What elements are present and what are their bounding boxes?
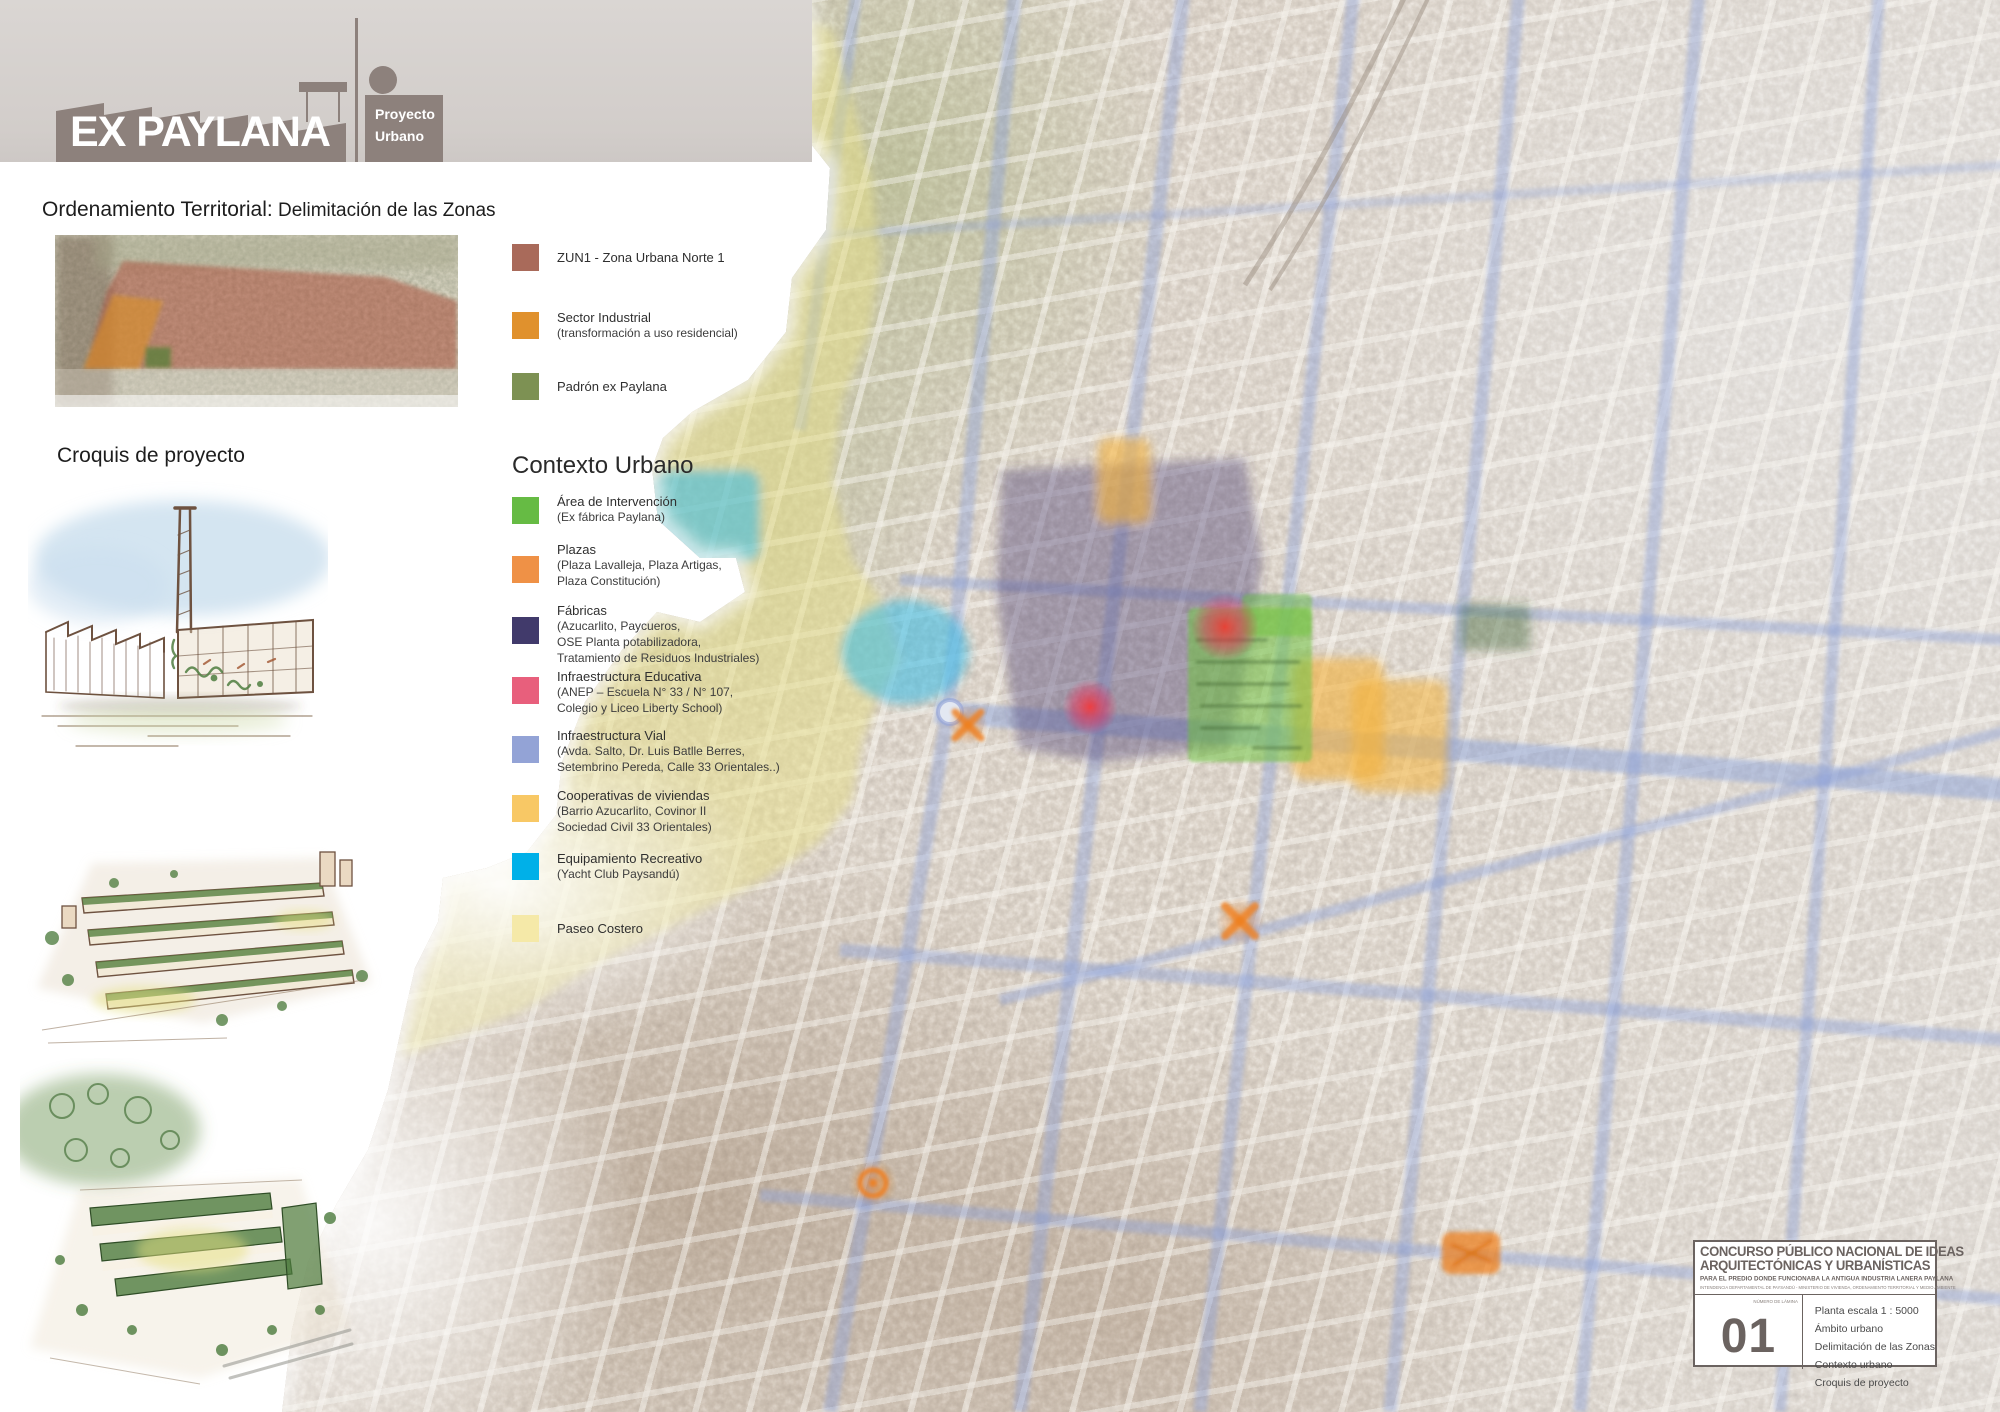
legend-subline: Plaza Constitución): [557, 574, 857, 590]
title-block-header: CONCURSO PÚBLICO NACIONAL DE IDEAS ARQUI…: [1695, 1242, 1935, 1295]
legend-subline: Sociedad Civil 33 Orientales): [557, 820, 857, 836]
legend-subline: (Plaza Lavalleja, Plaza Artigas,: [557, 558, 857, 574]
marker-plaza-rect: [1442, 1232, 1500, 1274]
sheet-contents-item: Contexto urbano: [1815, 1356, 1935, 1374]
header-band: EX PAYLANA Proyecto Urbano: [0, 0, 812, 162]
sheet-number: 01: [1695, 1309, 1802, 1364]
sports-field: [1460, 604, 1530, 650]
marker-educativa-1: [1191, 593, 1259, 661]
legend-swatch: [512, 617, 539, 644]
sheet-contents-list: Planta escala 1 : 5000 Ámbito urbano Del…: [1803, 1295, 1935, 1369]
competition-title-line2: ARQUITECTÓNICAS Y URBANÍSTICAS: [1700, 1259, 1924, 1273]
logo-title: EX PAYLANA: [70, 111, 330, 154]
marker-plaza-x1: [948, 705, 988, 745]
legend-swatch: [512, 497, 539, 524]
legend-label: Infraestructura Vial: [557, 728, 857, 744]
legend-subline: (Ex fábrica Paylana): [557, 510, 857, 526]
competition-title-line1: CONCURSO PÚBLICO NACIONAL DE IDEAS: [1700, 1245, 1924, 1259]
legend-label: Equipamiento Recreativo: [557, 851, 857, 867]
title-block: CONCURSO PÚBLICO NACIONAL DE IDEAS ARQUI…: [1693, 1240, 1937, 1367]
legend-subline: (Yacht Club Paysandú): [557, 867, 857, 883]
circle-icon: [369, 66, 397, 94]
sketch-masterplan-1: [22, 788, 387, 1053]
sheet-contents-item: Ámbito urbano: [1815, 1320, 1935, 1338]
sheet-number-label: NÚMERO DE LÁMINA: [1753, 1299, 1797, 1304]
legend-swatch: [512, 915, 539, 942]
legend-label: Infraestructura Educativa: [557, 669, 857, 685]
logo-subtitle-line2: Urbano: [375, 126, 443, 148]
competition-subtitle: PARA EL PREDIO DONDE FUNCIONABA LA ANTIG…: [1700, 1275, 1880, 1282]
zoning-mini-map: [55, 235, 458, 407]
logo-subtitle-line1: Proyecto: [375, 104, 443, 126]
sign-leg-icon: [338, 92, 340, 122]
sketch-masterplan-2: [20, 1058, 360, 1393]
legend-subline: (Barrio Azucarlito, Covinor II: [557, 804, 857, 820]
sign-bar-icon: [299, 82, 347, 92]
legend-subline: Setembrino Pereda, Calle 33 Orientales..…: [557, 760, 857, 776]
marker-plaza-spiral: [849, 1159, 897, 1207]
ordenamiento-heading-rest: Delimitación de las Zonas: [273, 200, 496, 221]
legend-label: Cooperativas de viviendas: [557, 788, 857, 804]
title-block-body: NÚMERO DE LÁMINA 01 Planta escala 1 : 50…: [1695, 1295, 1935, 1369]
legend-swatch: [512, 244, 539, 271]
sheet-contents-item: Delimitación de las Zonas: [1815, 1338, 1935, 1356]
croquis-heading: Croquis de proyecto: [57, 444, 245, 468]
marker-plaza-x2: [1216, 897, 1264, 945]
legend-subline: OSE Planta potabilizadora,: [557, 635, 857, 651]
legend-swatch: [512, 795, 539, 822]
legend-subline: Colegio y Liceo Liberty School): [557, 701, 857, 717]
sketch-factory: [28, 480, 328, 780]
legend-swatch: [512, 556, 539, 583]
legend-subline: Tratamiento de Residuos Industriales): [557, 651, 857, 667]
logo-subtitle-box: Proyecto Urbano: [365, 95, 443, 162]
legend-swatch: [512, 736, 539, 763]
marker-educativa-2: [1062, 679, 1118, 735]
presentation-board: EX PAYLANA Proyecto Urbano Ordenamiento …: [0, 0, 2000, 1412]
legend-subline: (Avda. Salto, Dr. Luis Batlle Berres,: [557, 744, 857, 760]
zone-cooperativas-1: [1098, 438, 1150, 522]
zoning-mini-map-svg: [55, 235, 458, 407]
legend-swatch: [512, 373, 539, 400]
ordenamiento-heading: Ordenamiento Territorial: Delimitación d…: [42, 198, 496, 222]
sheet-number-cell: NÚMERO DE LÁMINA 01: [1695, 1295, 1803, 1369]
legend-swatch: [512, 677, 539, 704]
legend-label: Plazas: [557, 542, 857, 558]
contexto-heading: Contexto Urbano: [512, 452, 693, 480]
sheet-contents-item: Planta escala 1 : 5000: [1815, 1302, 1935, 1320]
ordenamiento-heading-strong: Ordenamiento Territorial:: [42, 198, 273, 221]
legend-subline: (Azucarlito, Paycueros,: [557, 619, 857, 635]
legend-label: ZUN1 - Zona Urbana Norte 1: [557, 250, 857, 266]
legend-label: Fábricas: [557, 603, 857, 619]
zone-recreativo-yacht: [841, 600, 969, 704]
sheet-contents-item: Croquis de proyecto: [1815, 1374, 1935, 1392]
organizing-institutions: INTENDENCIA DEPARTAMENTAL DE PAYSANDÚ - …: [1700, 1285, 1820, 1290]
sign-leg-icon: [306, 92, 308, 122]
zone-cooperativas-3: [1352, 680, 1448, 792]
legend-label: Padrón ex Paylana: [557, 379, 857, 395]
chimney-icon: [355, 18, 358, 162]
legend-label: Paseo Costero: [557, 921, 857, 937]
legend-subline: (transformación a uso residencial): [557, 326, 857, 342]
mini-zone-padron: [145, 347, 171, 368]
legend-label: Sector Industrial: [557, 310, 857, 326]
legend-label: Área de Intervención: [557, 494, 857, 510]
legend-swatch: [512, 853, 539, 880]
legend-subline: (ANEP – Escuela N° 33 / N° 107,: [557, 685, 857, 701]
legend-swatch: [512, 312, 539, 339]
